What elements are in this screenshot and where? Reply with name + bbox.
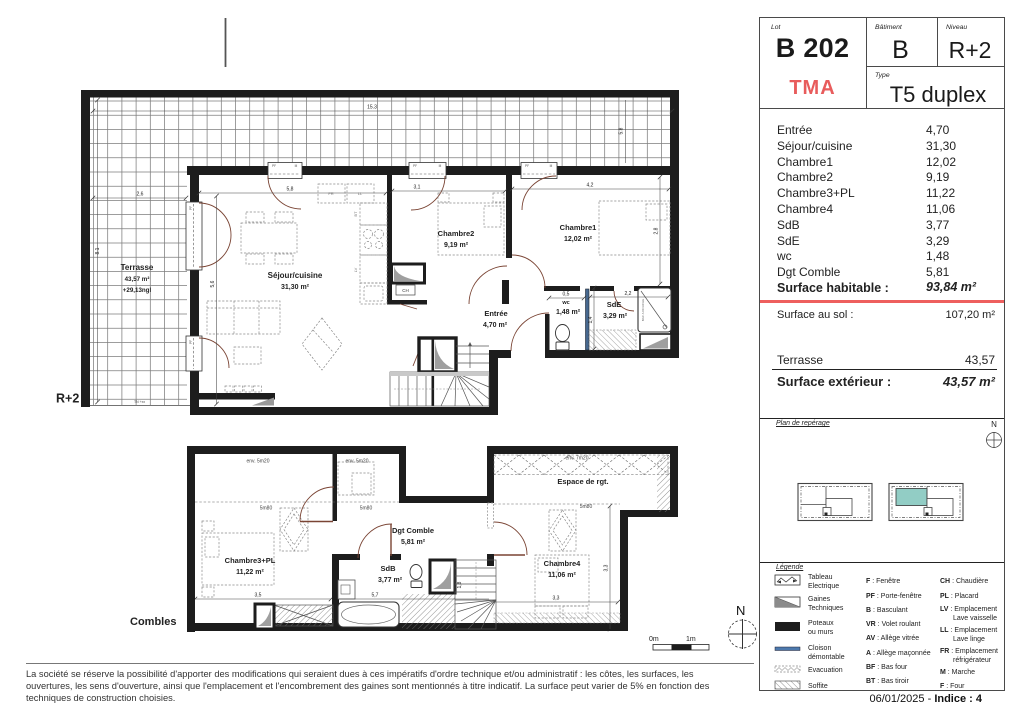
svg-text:BT: BT — [353, 211, 358, 217]
svg-text:0m: 0m — [649, 636, 659, 643]
svg-text:43,57 m²: 43,57 m² — [125, 276, 150, 283]
svg-text:env. 5m20: env. 5m20 — [346, 459, 369, 465]
svg-text:N: N — [736, 603, 745, 618]
svg-text:3,29 m²: 3,29 m² — [603, 313, 628, 320]
svg-text:15.3: 15.3 — [367, 105, 377, 111]
svg-text:CH: CH — [402, 288, 409, 293]
svg-text:9,19 m²: 9,19 m² — [444, 242, 469, 249]
svg-text:3,3: 3,3 — [604, 564, 610, 571]
svg-text:5m80: 5m80 — [260, 506, 273, 512]
svg-text:R+2: R+2 — [56, 392, 79, 406]
svg-text:M: M — [550, 164, 553, 168]
svg-text:M: M — [439, 164, 442, 168]
svg-text:Chambre3+PL: Chambre3+PL — [225, 556, 276, 565]
svg-text:5,8: 5,8 — [287, 187, 294, 193]
svg-text:2,8: 2,8 — [654, 227, 660, 234]
svg-text:Espace de rgt.: Espace de rgt. — [557, 477, 608, 486]
svg-text:1,4: 1,4 — [588, 316, 594, 323]
svg-text:Terrasse: Terrasse — [121, 263, 154, 272]
svg-text:PF: PF — [189, 340, 193, 344]
svg-text:Chambre1: Chambre1 — [560, 223, 597, 232]
svg-text:wc: wc — [561, 300, 569, 306]
svg-text:N: N — [991, 420, 997, 429]
svg-text:3,77 m²: 3,77 m² — [378, 577, 403, 584]
svg-text:LL: LL — [358, 191, 363, 196]
svg-text:4,70 m²: 4,70 m² — [483, 322, 508, 329]
svg-text:SdE: SdE — [607, 300, 622, 309]
svg-text:5,81 m²: 5,81 m² — [401, 539, 426, 546]
svg-text:5m80: 5m80 — [580, 504, 593, 510]
svg-text:0,5: 0,5 — [563, 292, 570, 298]
svg-text:PF: PF — [525, 164, 529, 168]
svg-text:PF: PF — [272, 164, 276, 168]
svg-text:4,2: 4,2 — [587, 183, 594, 189]
svg-text:5m80: 5m80 — [360, 506, 373, 512]
svg-text:PF: PF — [413, 164, 417, 168]
svg-text:Dgt Comble: Dgt Comble — [392, 526, 434, 535]
svg-text:Chambre2: Chambre2 — [438, 229, 475, 238]
svg-text:3,3: 3,3 — [553, 596, 560, 602]
svg-text:12,02 m²: 12,02 m² — [564, 236, 593, 243]
svg-text:11,22 m²: 11,22 m² — [236, 569, 264, 576]
svg-text:3,1: 3,1 — [414, 185, 421, 191]
svg-text:LV: LV — [353, 267, 358, 272]
svg-text:11,06 m²: 11,06 m² — [548, 572, 576, 579]
svg-text:8.1: 8.1 — [95, 247, 101, 254]
svg-text:5,6: 5,6 — [210, 280, 216, 287]
svg-text:Entrée: Entrée — [484, 309, 507, 318]
svg-text:2,6: 2,6 — [137, 192, 144, 198]
svg-text:BAC A DOUCHE: BAC A DOUCHE — [641, 299, 645, 322]
svg-text:1m: 1m — [686, 636, 696, 643]
svg-text:5.8: 5.8 — [619, 127, 625, 134]
svg-text:SdB: SdB — [381, 564, 397, 573]
svg-text:Chambre4: Chambre4 — [544, 559, 582, 568]
svg-text:5,7: 5,7 — [372, 593, 379, 599]
svg-text:3,5: 3,5 — [255, 593, 262, 599]
svg-text:+29,13ngl: +29,13ngl — [123, 287, 152, 294]
svg-text:1,8: 1,8 — [457, 581, 463, 588]
svg-text:TN +xx: TN +xx — [134, 400, 145, 404]
svg-text:PF: PF — [189, 206, 193, 210]
svg-text:2,2: 2,2 — [625, 291, 632, 297]
svg-text:Séjour/cuisine: Séjour/cuisine — [268, 271, 323, 280]
svg-text:31,30 m²: 31,30 m² — [281, 284, 310, 291]
svg-text:env. 7m20: env. 7m20 — [566, 456, 589, 462]
svg-text:1,48 m²: 1,48 m² — [556, 309, 581, 316]
svg-text:env. 5m20: env. 5m20 — [247, 459, 270, 465]
svg-text:Combles: Combles — [130, 616, 176, 628]
svg-text:M: M — [295, 164, 298, 168]
svg-text:FR: FR — [328, 191, 333, 196]
